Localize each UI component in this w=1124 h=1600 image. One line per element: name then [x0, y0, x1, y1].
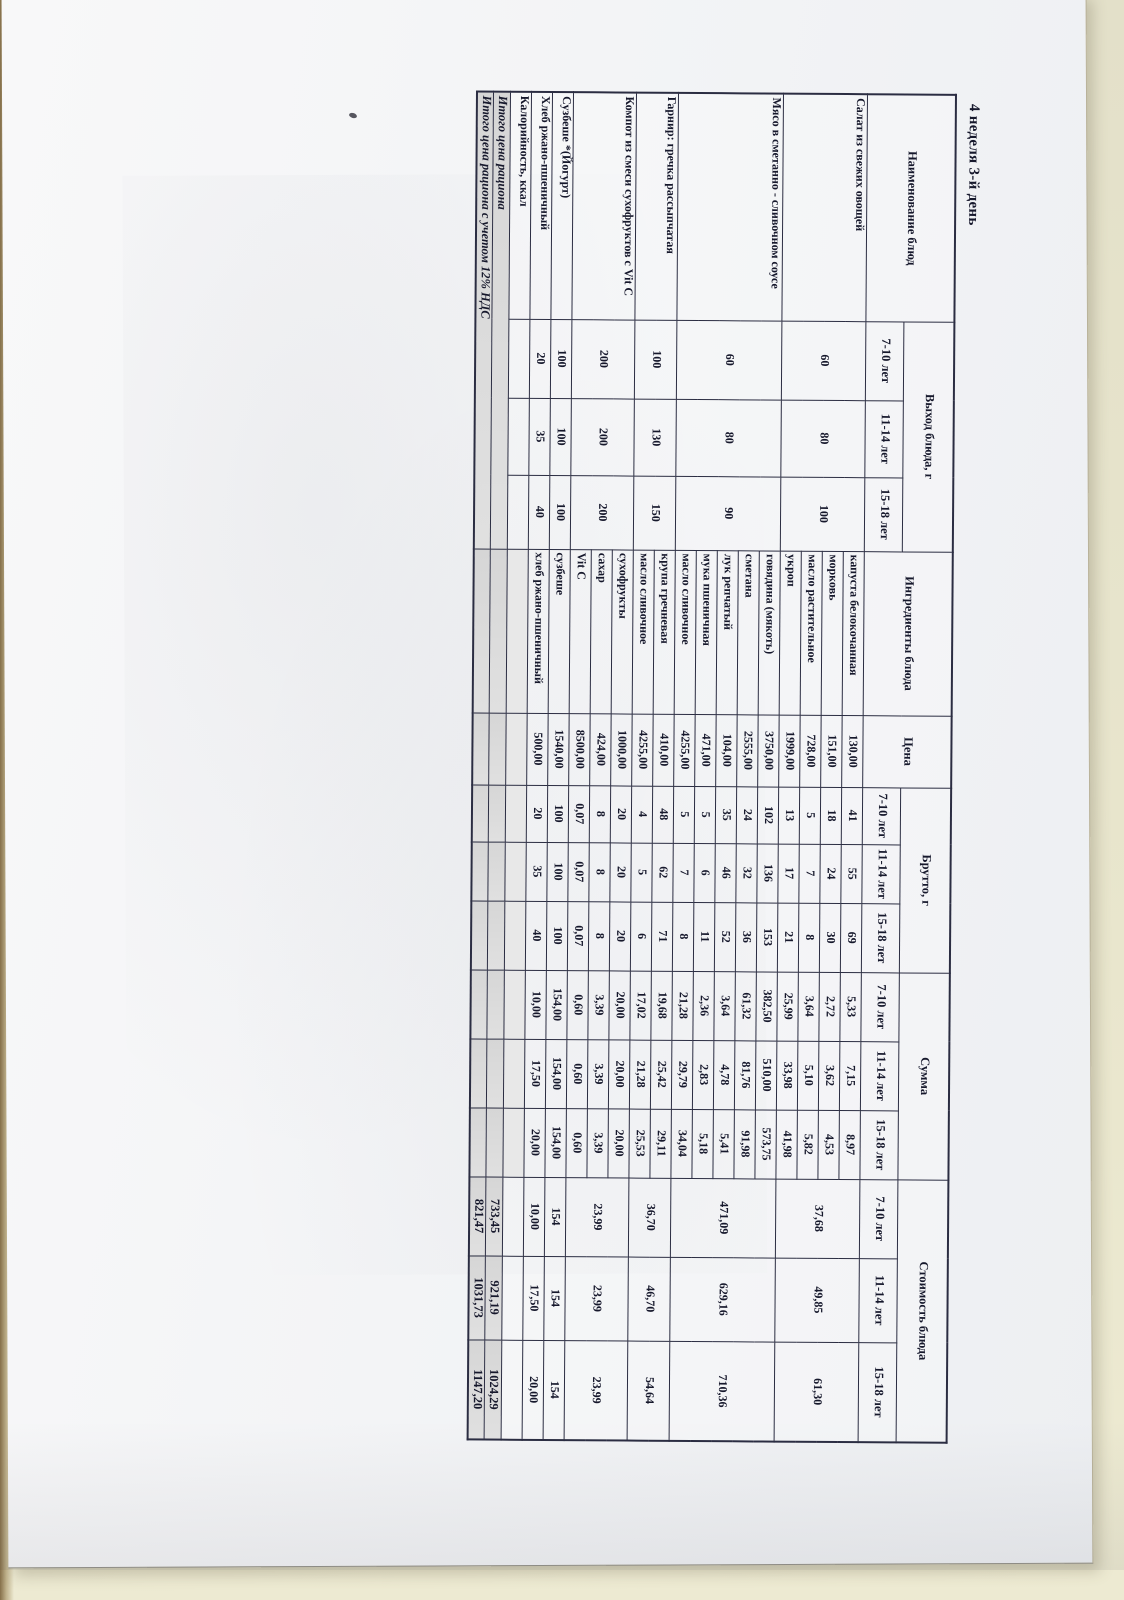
- gross-value: 136: [757, 843, 778, 902]
- empty-cell: [505, 901, 526, 970]
- yield-value: 200: [571, 475, 635, 549]
- yield-value: 40: [529, 475, 551, 549]
- ingredient-name: сахар: [591, 549, 613, 713]
- yield-value: 100: [550, 398, 572, 475]
- header-gross: Брутто, г: [900, 787, 951, 972]
- sum-value: 5,18: [692, 1109, 713, 1178]
- yield-value: 200: [571, 398, 635, 475]
- sum-value: 81,76: [735, 1040, 756, 1109]
- sum-value: 4,53: [818, 1110, 839, 1179]
- dish-cost-value: 36,70: [629, 1178, 672, 1257]
- header-age-11-14: 11-14 лет: [859, 1258, 898, 1342]
- sum-value: 61,32: [735, 971, 756, 1040]
- price-value: 8500,00: [569, 713, 591, 785]
- gross-value: 7: [673, 843, 694, 902]
- table-header: Наименование блюд Выход блюда, г Ингреди…: [859, 94, 956, 1443]
- price-value: 424,00: [590, 713, 612, 785]
- sum-value: 382,50: [756, 971, 777, 1040]
- gross-value: 5: [695, 786, 716, 843]
- rotated-document: 4 неделя 3-й день Наименование блюд Выхо…: [459, 90, 982, 1446]
- ingredient-name: сметана: [738, 550, 760, 714]
- gross-value: 4: [632, 786, 653, 843]
- gross-value: 30: [820, 903, 841, 972]
- gross-value: 52: [715, 902, 736, 971]
- menu-table: Наименование блюд Выход блюда, г Ингреди…: [467, 90, 957, 1443]
- total-value: 1024,29: [485, 1340, 503, 1440]
- dish-cost-value: 10,00: [524, 1177, 546, 1256]
- gross-value: 69: [841, 903, 862, 972]
- gross-value: 71: [652, 902, 673, 971]
- price-value: 104,00: [716, 714, 738, 786]
- yield-value: 80: [781, 400, 866, 478]
- header-age-7-10: 7-10 лет: [866, 321, 905, 400]
- gross-value: 100: [547, 842, 568, 901]
- yield-value: 100: [781, 477, 866, 552]
- sum-value: 154,00: [546, 1039, 567, 1108]
- gross-value: 48: [653, 786, 674, 843]
- gross-value: 20: [610, 842, 631, 901]
- empty-cell: [471, 900, 488, 969]
- price-value: 471,00: [695, 714, 717, 786]
- gross-value: 8: [590, 785, 611, 842]
- gross-value: 100: [548, 785, 569, 842]
- header-age-15-18: 15-18 лет: [859, 1342, 898, 1442]
- empty-cell: [486, 1108, 503, 1177]
- gross-value: 36: [736, 902, 757, 971]
- gross-value: 8: [589, 842, 610, 901]
- empty-cell: [503, 1108, 524, 1177]
- gross-value: 55: [841, 844, 862, 903]
- empty-cell: [489, 785, 506, 842]
- dish-cost-value: 629,16: [670, 1257, 776, 1342]
- header-age-15-18: 15-18 лет: [862, 903, 900, 972]
- price-value: 130,00: [842, 715, 864, 787]
- ingredient-name: сузбеше: [549, 549, 571, 713]
- sum-value: 91,98: [734, 1109, 755, 1178]
- header-age-15-18: 15-18 лет: [865, 477, 904, 551]
- gross-value: 100: [547, 901, 568, 970]
- gross-value: 8: [673, 902, 694, 971]
- sum-value: 20,00: [609, 1039, 630, 1108]
- price-value: 4255,00: [674, 714, 696, 786]
- sum-value: 154,00: [546, 970, 567, 1039]
- dish-cost-value: 17,50: [523, 1256, 545, 1340]
- yield-value: 60: [782, 321, 867, 401]
- cost-value: [502, 1340, 524, 1440]
- sum-value: 0,60: [567, 1039, 588, 1108]
- header-age-11-14: 11-14 лет: [865, 400, 904, 477]
- gross-value: 24: [820, 844, 841, 903]
- sum-value: 3,39: [588, 1039, 609, 1108]
- gross-value: 11: [694, 902, 715, 971]
- dish-name: Салат из свежих овощей: [782, 94, 868, 322]
- ingredient-name: масло сливочное: [675, 550, 697, 714]
- empty-cell: [505, 842, 526, 901]
- ingredient-name: масло растительное: [801, 551, 823, 715]
- sum-value: 33,98: [777, 1041, 798, 1110]
- sum-value: 5,10: [798, 1041, 819, 1110]
- gross-value: 24: [737, 786, 758, 843]
- dish-name: Сузбеше *(Йогурт): [551, 92, 574, 319]
- total-value: 1147,20: [468, 1339, 486, 1439]
- yield-value: 100: [551, 319, 573, 398]
- empty-cell: [487, 1039, 504, 1108]
- sum-value: 5,41: [713, 1109, 734, 1178]
- gross-value: 20: [610, 901, 631, 970]
- sum-value: 3,39: [588, 970, 609, 1039]
- gross-value: 18: [821, 787, 842, 844]
- sum-value: 5,82: [797, 1110, 818, 1179]
- sum-value: 7,15: [840, 1041, 861, 1110]
- sum-value: 5,33: [840, 972, 861, 1041]
- sum-value: 4,78: [714, 1040, 735, 1109]
- dish-cost-value: 154: [544, 1256, 566, 1340]
- gross-value: 153: [757, 902, 778, 971]
- ingredient-name: укроп: [780, 551, 802, 715]
- sum-value: 17,50: [525, 1039, 546, 1108]
- sum-value: 154,00: [545, 1108, 566, 1177]
- gross-value: 17: [778, 844, 799, 903]
- gross-value: 8: [589, 901, 610, 970]
- header-dish-name: Наименование блюд: [866, 94, 956, 322]
- price-value: 1540,00: [548, 713, 570, 785]
- sum-value: 19,68: [651, 971, 672, 1040]
- sum-value: 21,28: [672, 971, 693, 1040]
- dish-cost-value: 154: [544, 1340, 566, 1440]
- empty-cell: [506, 713, 528, 785]
- total-value: 921,19: [485, 1256, 503, 1340]
- price-value: 728,00: [800, 715, 822, 787]
- dish-name: Компот из смеси сухофруктов с Vit C: [572, 92, 637, 319]
- total-value: 821,47: [469, 1176, 487, 1255]
- yield-value: 150: [634, 476, 677, 550]
- yield-value: 100: [635, 320, 678, 399]
- sum-value: 8,97: [839, 1110, 860, 1179]
- sum-value: 20,00: [609, 970, 630, 1039]
- price-value: 2555,00: [737, 714, 759, 786]
- dish-cost-value: 23,99: [565, 1256, 629, 1340]
- dish-name: Мясо в сметанно - сливочном соусе: [677, 93, 784, 321]
- yield-value: [509, 319, 531, 398]
- gross-value: 0,07: [568, 842, 589, 901]
- cost-value: [502, 1256, 524, 1340]
- gross-value: 5: [800, 787, 821, 844]
- gross-value: 32: [736, 843, 757, 902]
- gross-value: 20: [611, 785, 632, 842]
- dish-cost-value: 37,68: [776, 1179, 861, 1259]
- dish-cost-value: 54,64: [628, 1341, 671, 1441]
- header-age-11-14: 11-14 лет: [861, 1041, 899, 1110]
- yield-value: 200: [572, 319, 636, 398]
- menu-table-body: Салат из свежих овощей6080100капуста бел…: [468, 91, 868, 1442]
- yield-value: 60: [677, 320, 783, 400]
- empty-cell: [487, 970, 504, 1039]
- dish-cost-value: 23,99: [565, 1340, 629, 1440]
- sum-value: 2,83: [693, 1040, 714, 1109]
- empty-cell: [471, 841, 488, 900]
- header-ingredients: Ингредиенты блюда: [864, 551, 953, 716]
- sum-value: 0,60: [567, 970, 588, 1039]
- gross-value: 6: [631, 902, 652, 971]
- dish-cost-value: 471,09: [671, 1178, 777, 1258]
- gross-value: 35: [716, 786, 737, 843]
- sum-value: 25,99: [777, 972, 798, 1041]
- dish-name: Хлеб ржано-пшеничный: [530, 92, 553, 319]
- empty-cell: [472, 712, 490, 784]
- empty-cell: [489, 713, 507, 785]
- header-age-7-10: 7-10 лет: [860, 1179, 899, 1258]
- dish-cost-value: 710,36: [670, 1341, 776, 1442]
- dish-cost-value: 61,30: [775, 1342, 860, 1443]
- sum-value: 2,36: [693, 971, 714, 1040]
- yield-value: [508, 398, 530, 475]
- row-label: Калорийность, ккал: [509, 92, 532, 319]
- gross-value: 5: [674, 786, 695, 843]
- header-sum: Сумма: [898, 972, 949, 1179]
- empty-cell: [507, 549, 529, 713]
- price-value: 410,00: [653, 714, 675, 786]
- ingredient-name: сухофрукты: [612, 549, 634, 713]
- gross-value: 6: [694, 843, 715, 902]
- empty-cell: [504, 1039, 525, 1108]
- price-value: 3750,00: [758, 714, 780, 786]
- gross-value: 0,07: [569, 785, 590, 842]
- empty-cell: [504, 970, 525, 1039]
- sum-value: 2,72: [819, 972, 840, 1041]
- header-age-11-14: 11-14 лет: [862, 844, 900, 903]
- empty-cell: [490, 549, 508, 713]
- total-value: 733,45: [486, 1177, 504, 1256]
- empty-cell: [469, 1107, 486, 1176]
- total-label: Итого цена рациона: [491, 92, 511, 549]
- sum-value: 3,62: [819, 1041, 840, 1110]
- empty-cell: [488, 901, 505, 970]
- header-price: Цена: [863, 715, 952, 788]
- sum-value: 3,39: [587, 1108, 608, 1177]
- price-value: 4255,00: [632, 714, 654, 786]
- empty-cell: [506, 785, 527, 842]
- ingredient-name: мука пшеничная: [696, 550, 718, 714]
- dish-cost-value: 46,70: [628, 1257, 671, 1341]
- yield-value: 35: [529, 398, 551, 475]
- price-value: 151,00: [821, 715, 843, 787]
- empty-cell: [470, 969, 487, 1038]
- sum-value: 17,02: [630, 971, 651, 1040]
- sum-value: 510,00: [756, 1040, 777, 1109]
- header-yield: Выход блюда, г: [903, 321, 955, 551]
- yield-value: 90: [676, 476, 782, 551]
- price-value: 1000,00: [611, 713, 633, 785]
- gross-value: 5: [631, 843, 652, 902]
- empty-cell: [472, 784, 489, 841]
- ingredient-name: Vit C: [570, 549, 592, 713]
- ingredient-name: капуста белокочанная: [843, 551, 865, 715]
- yield-value: 130: [634, 399, 677, 476]
- sum-value: 25,42: [651, 1040, 672, 1109]
- sum-value: 34,04: [671, 1109, 692, 1178]
- dish-cost-value: 23,99: [566, 1177, 630, 1256]
- dish-cost-value: 49,85: [775, 1258, 860, 1343]
- dish-name: Гарнир: гречка рассыпчатая: [635, 93, 679, 320]
- ingredient-name: лук репчатый: [717, 550, 739, 714]
- sum-value: 0,60: [566, 1108, 587, 1177]
- cost-value: [503, 1177, 525, 1256]
- ingredient-name: морковь: [822, 551, 844, 715]
- gross-value: 21: [778, 903, 799, 972]
- sum-value: 3,64: [798, 972, 819, 1041]
- header-cost: Стоимость блюда: [897, 1179, 949, 1442]
- sum-value: 21,28: [630, 1040, 651, 1109]
- yield-value: [508, 475, 530, 549]
- gross-value: 13: [779, 787, 800, 844]
- gross-value: 40: [526, 901, 547, 970]
- gross-value: 102: [758, 786, 779, 843]
- empty-cell: [488, 842, 505, 901]
- gross-value: 35: [526, 842, 547, 901]
- gross-value: 41: [842, 787, 863, 844]
- sum-value: 573,75: [755, 1109, 776, 1178]
- gross-value: 8: [799, 903, 820, 972]
- price-value: 1999,00: [779, 715, 801, 787]
- sum-value: 25,53: [629, 1109, 650, 1178]
- sum-value: 20,00: [524, 1108, 545, 1177]
- sum-value: 3,64: [714, 971, 735, 1040]
- total-label: Итого цена рациона с учетом 12% НДС: [474, 91, 494, 548]
- header-age-7-10: 7-10 лет: [863, 787, 901, 844]
- ingredient-name: масло сливочное: [633, 550, 655, 714]
- sum-value: 41,98: [776, 1110, 797, 1179]
- sum-value: 29,79: [672, 1040, 693, 1109]
- empty-cell: [470, 1038, 487, 1107]
- sum-value: 29,11: [650, 1109, 671, 1178]
- sum-value: 10,00: [525, 970, 546, 1039]
- empty-cell: [473, 548, 491, 712]
- ingredient-name: говядина (мякоть): [759, 550, 781, 714]
- header-age-15-18: 15-18 лет: [860, 1110, 898, 1179]
- yield-value: 20: [530, 319, 552, 398]
- header-age-7-10: 7-10 лет: [861, 972, 899, 1041]
- yield-value: 80: [676, 399, 782, 477]
- gross-value: 20: [527, 785, 548, 842]
- scanned-photo: 4 неделя 3-й день Наименование блюд Выхо…: [0, 0, 1124, 1600]
- total-value: 1031,73: [468, 1255, 486, 1339]
- gross-value: 62: [652, 843, 673, 902]
- gross-value: 0,07: [568, 901, 589, 970]
- dish-cost-value: 20,00: [523, 1340, 545, 1440]
- gross-value: 46: [715, 843, 736, 902]
- dish-cost-value: 154: [545, 1177, 567, 1256]
- ingredient-name: крупа гречневая: [654, 550, 676, 714]
- ingredient-name: хлеб ржано-пшеничный: [528, 549, 550, 713]
- gross-value: 7: [799, 844, 820, 903]
- yield-value: 100: [550, 475, 572, 549]
- price-value: 500,00: [527, 713, 549, 785]
- sum-value: 20,00: [608, 1108, 629, 1177]
